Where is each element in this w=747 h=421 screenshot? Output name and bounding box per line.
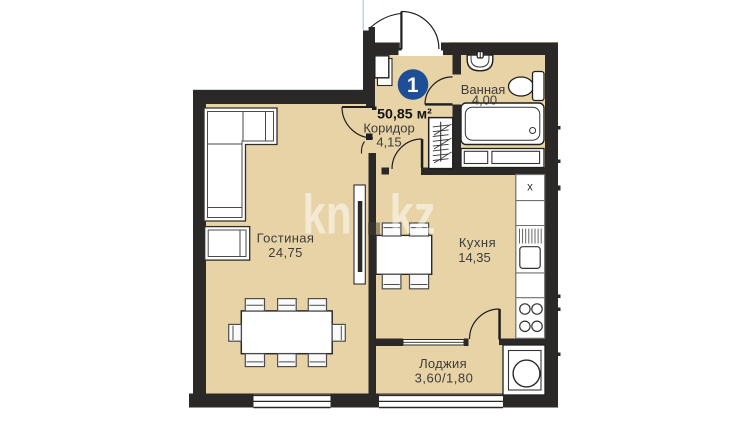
svg-text:Лоджия: Лоджия (419, 356, 467, 371)
svg-text:kn: kn (303, 183, 352, 246)
svg-text:kz: kz (390, 183, 436, 246)
svg-text:Коридор: Коридор (363, 120, 414, 135)
svg-text:4,00: 4,00 (472, 92, 497, 107)
svg-text:x: x (527, 182, 533, 194)
svg-text:1: 1 (407, 74, 419, 97)
svg-text:3,60/1,80: 3,60/1,80 (415, 370, 474, 385)
svg-text:Кухня: Кухня (459, 235, 496, 250)
svg-text:4,15: 4,15 (376, 134, 401, 149)
svg-text:14,35: 14,35 (458, 250, 491, 265)
svg-text:24,75: 24,75 (268, 245, 303, 260)
